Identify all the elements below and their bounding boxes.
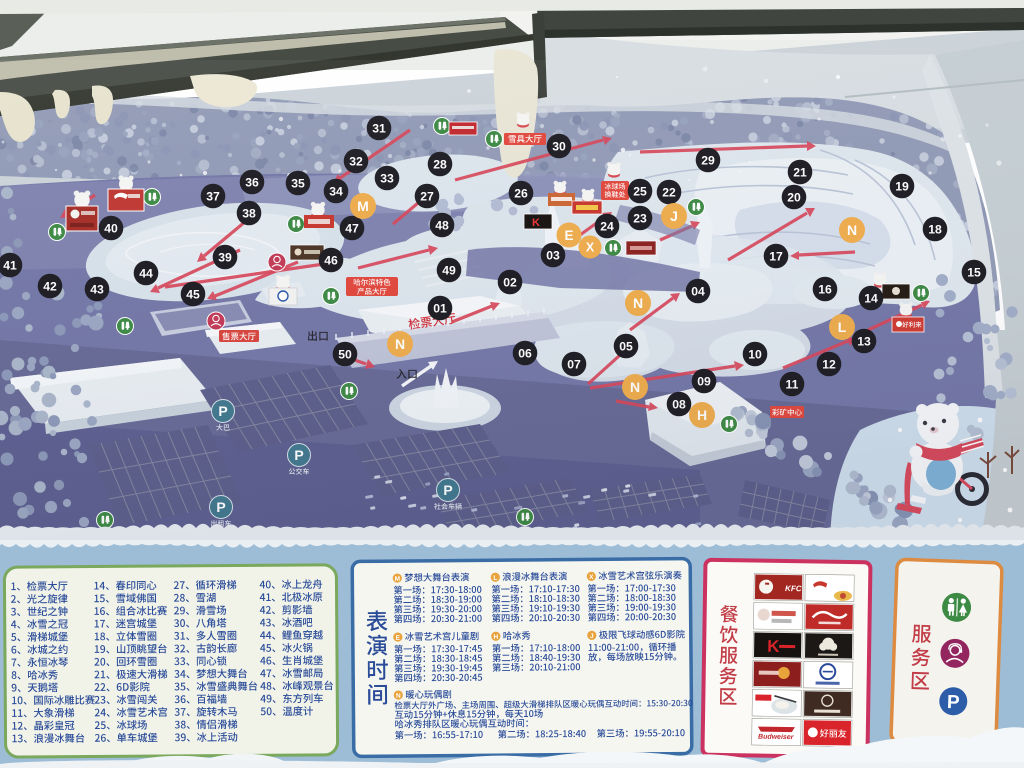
svg-text:E: E [396,635,401,642]
svg-text:L: L [493,575,497,582]
svg-text:X: X [589,574,594,581]
svg-text:N: N [396,693,401,700]
svg-text:M: M [395,576,400,583]
svg-text:K: K [767,637,780,656]
svg-text:Budweiser: Budweiser [758,734,795,742]
svg-text:H: H [493,634,498,641]
svg-text:P: P [947,692,961,713]
svg-text:J: J [590,633,594,640]
svg-text:KFC: KFC [785,584,802,593]
